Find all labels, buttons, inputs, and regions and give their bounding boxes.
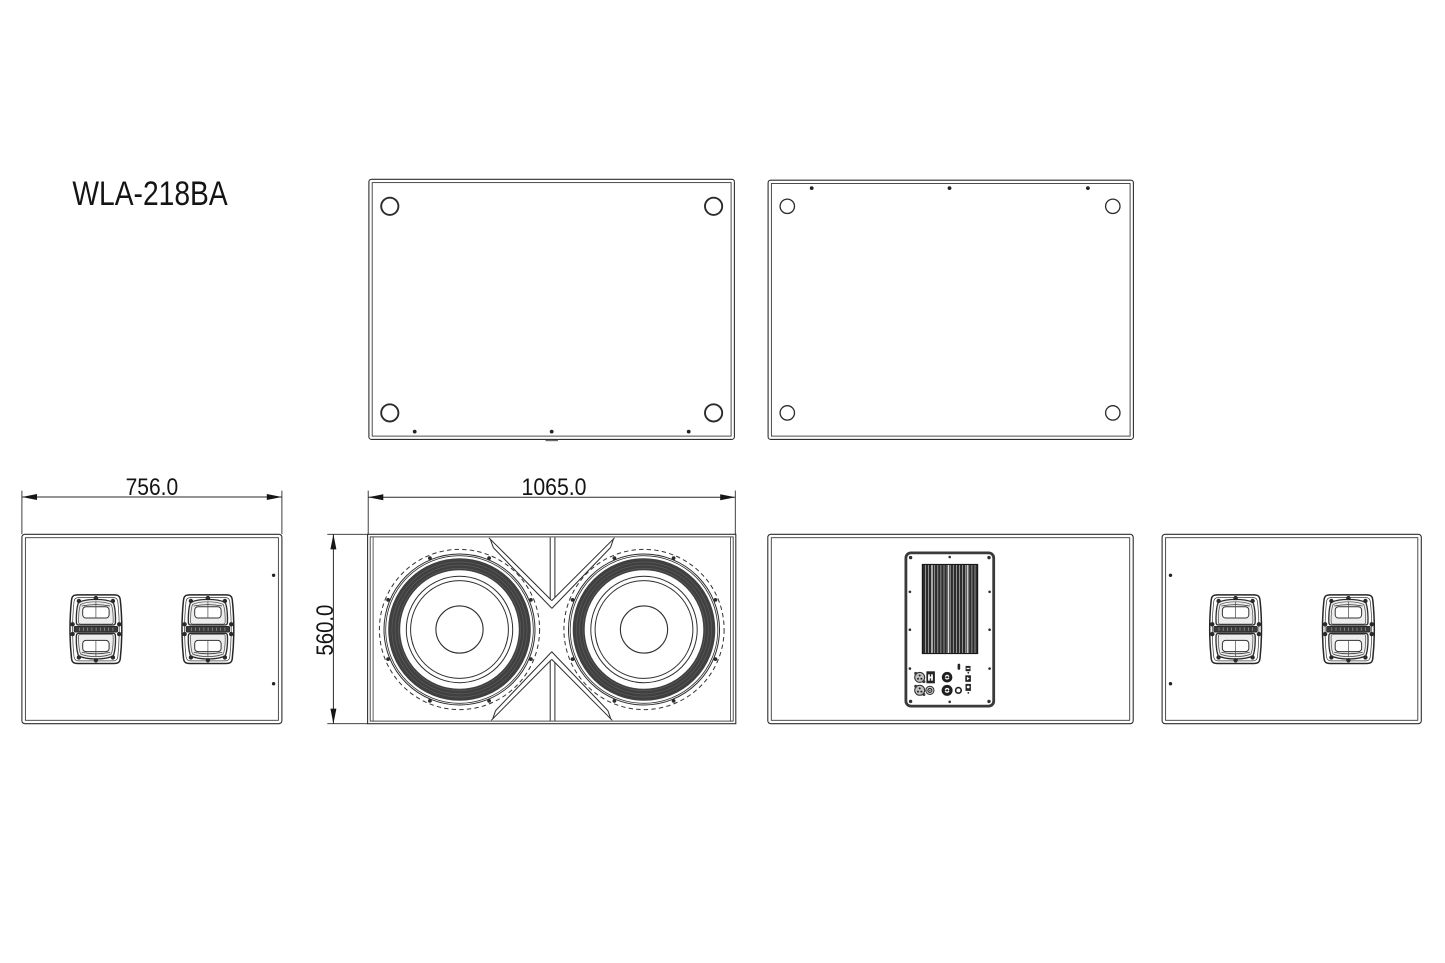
- svg-text:560.0: 560.0: [312, 605, 339, 656]
- svg-text:756.0: 756.0: [126, 474, 179, 501]
- svg-text:1065.0: 1065.0: [522, 474, 587, 501]
- svg-text:WLA-218BA: WLA-218BA: [72, 175, 228, 213]
